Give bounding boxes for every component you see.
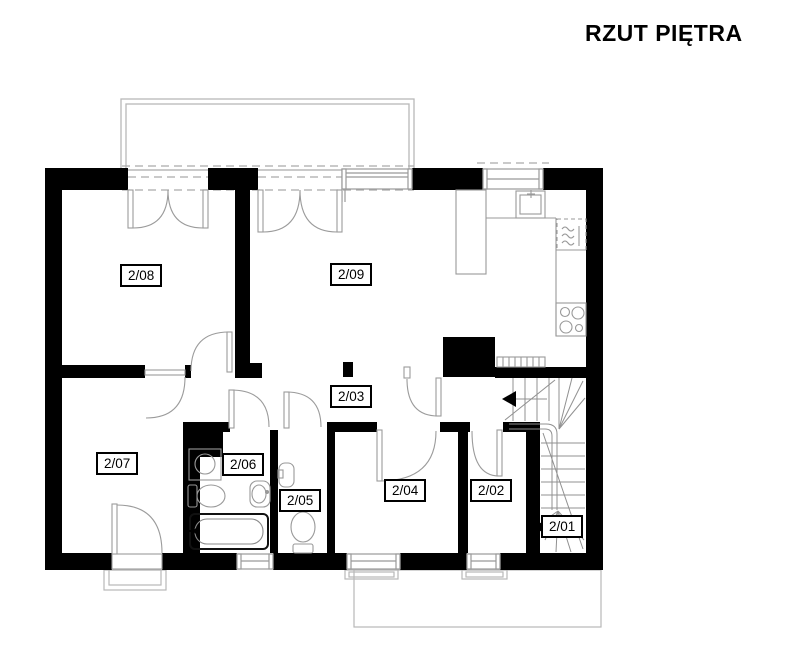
door-205 <box>284 392 321 428</box>
window-room-204 <box>347 554 400 569</box>
washbasin-icon <box>250 481 270 507</box>
room-label-2-07: 2/07 <box>96 452 138 475</box>
door-balcony-208 <box>128 190 208 228</box>
door-206 <box>229 390 269 428</box>
fridge-coils <box>562 226 579 246</box>
room-label-2-05: 2/05 <box>279 489 321 512</box>
window-bathroom <box>237 554 273 569</box>
room-label-2-09: 2/09 <box>330 263 372 286</box>
room-label-2-04: 2/04 <box>384 479 426 502</box>
room-label-2-01: 2/01 <box>541 515 583 538</box>
room-label-2-08: 2/08 <box>120 264 162 287</box>
door-exit-207 <box>112 504 162 569</box>
window-room-202 <box>467 554 500 569</box>
floor-plan-drawing <box>0 0 792 651</box>
wc-washbasin-icon <box>278 463 294 487</box>
door-balcony-209 <box>258 190 342 232</box>
door-207 <box>145 370 185 418</box>
direction-arrow-icon <box>502 391 516 407</box>
room-label-2-02: 2/02 <box>470 479 512 502</box>
door-202 <box>472 430 502 476</box>
room-label-2-03: 2/03 <box>330 385 372 408</box>
room-label-2-06: 2/06 <box>222 453 264 476</box>
entry-steps <box>104 570 166 590</box>
kitchen-sink-icon <box>516 190 545 218</box>
stove-icon <box>556 303 586 336</box>
window-kitchen <box>483 169 543 189</box>
terrace-outline <box>345 570 601 627</box>
door-208 <box>191 332 232 372</box>
kitchen-steps <box>497 357 545 367</box>
floor-plan-page: RZUT PIĘTRA <box>0 0 792 651</box>
doors <box>112 190 502 569</box>
window-top-living <box>342 169 412 202</box>
balcony-outline <box>121 99 414 170</box>
kitchen-counter <box>456 190 586 336</box>
door-204 <box>377 430 436 481</box>
door-kitchen <box>404 367 441 416</box>
wc-toilet-icon <box>291 512 315 553</box>
